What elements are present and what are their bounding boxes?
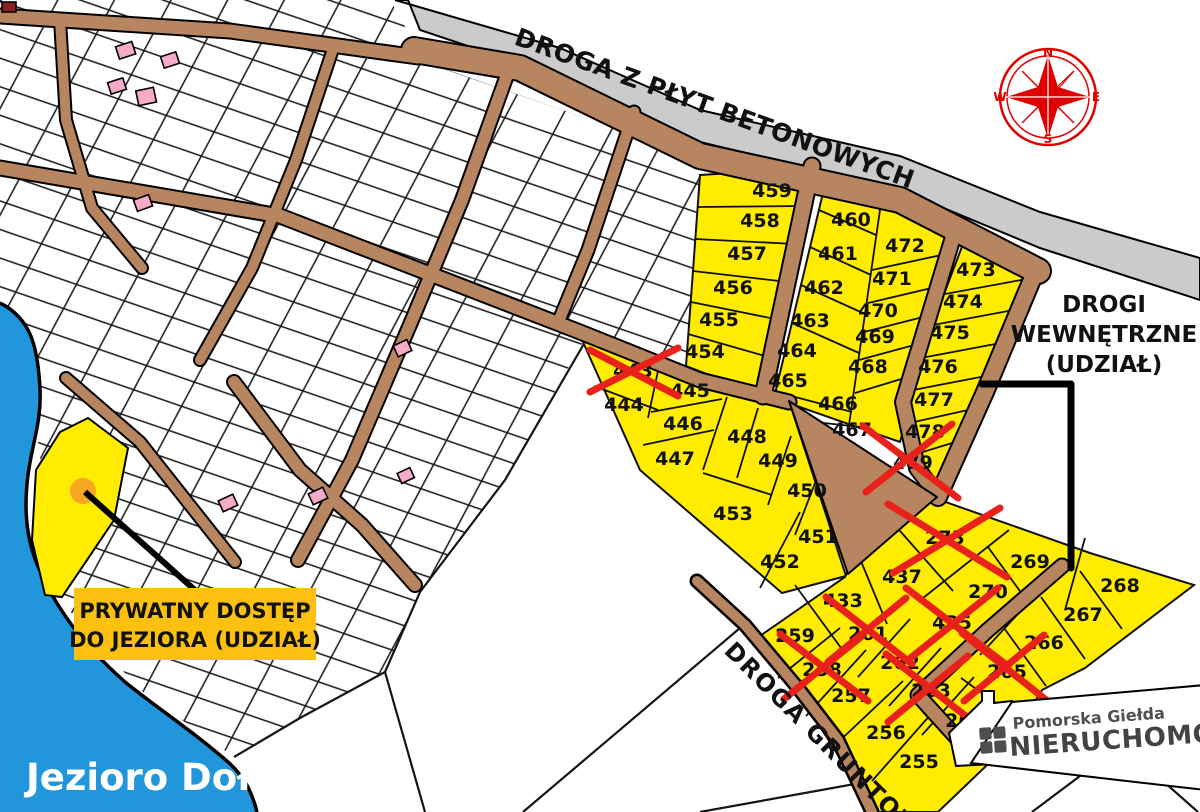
svg-text:(UDZIAŁ): (UDZIAŁ) — [1046, 352, 1163, 378]
parcel-number: 458 — [740, 210, 780, 232]
parcel-number: 465 — [768, 370, 808, 392]
parcel-number: 473 — [956, 259, 996, 281]
svg-text:WEWNĘTRZNE: WEWNĘTRZNE — [1011, 322, 1197, 348]
parcel-number: 453 — [713, 503, 753, 525]
parcel-number: 477 — [914, 389, 954, 411]
parcel-number: 444 — [604, 394, 644, 416]
internal-roads-label: DROGI WEWNĘTRZNE (UDZIAŁ) — [1011, 292, 1197, 378]
private-access-label: PRYWATNY DOSTĘP DO JEZIORA (UDZIAŁ) — [69, 588, 321, 660]
lake-name: Jezioro Dołgie — [23, 756, 315, 799]
parcel-number: 255 — [899, 751, 939, 773]
svg-text:DROGI: DROGI — [1062, 292, 1146, 318]
parcel-number: 472 — [885, 235, 925, 257]
parcel-number: 267 — [1063, 604, 1103, 626]
parcel-number: 451 — [798, 526, 838, 548]
parcel-map: 459 458 457 456 455 454 460 461 462 463 … — [0, 0, 1200, 812]
parcel-number: 476 — [918, 356, 958, 378]
svg-text:N: N — [1043, 46, 1053, 60]
svg-text:PRYWATNY DOSTĘP: PRYWATNY DOSTĘP — [79, 599, 310, 623]
parcel-number: 454 — [685, 341, 725, 363]
compass-rose-icon: N E S W — [993, 46, 1100, 146]
svg-text:S: S — [1044, 132, 1053, 146]
parcel-number: 452 — [760, 551, 800, 573]
svg-text:DO JEZIORA (UDZIAŁ): DO JEZIORA (UDZIAŁ) — [69, 628, 321, 652]
parcel-number: 463 — [790, 310, 830, 332]
parcel-number: 470 — [858, 300, 898, 322]
parcel-number: 464 — [777, 340, 817, 362]
parcel-number: 455 — [699, 309, 739, 331]
map-canvas: 459 458 457 456 455 454 460 461 462 463 … — [0, 0, 1200, 812]
parcel-number: 474 — [943, 291, 983, 313]
parcel-number: 457 — [727, 243, 767, 265]
parcel-number: 446 — [663, 413, 703, 435]
svg-text:E: E — [1092, 90, 1100, 104]
agency-logo: Pomorska Giełda NIERUCHOMOŚCI — [949, 685, 1200, 790]
parcel-number: 462 — [804, 277, 844, 299]
parcel-number: 256 — [866, 722, 906, 744]
parcel-number: 471 — [872, 268, 912, 290]
parcel-number: 447 — [655, 448, 695, 470]
parcel-number: 456 — [713, 277, 753, 299]
parcel-number: 448 — [727, 426, 767, 448]
parcel-number: 459 — [752, 180, 792, 202]
parcel-number: 468 — [848, 356, 888, 378]
parcel-number: 269 — [1010, 551, 1050, 573]
parcel-number: 268 — [1100, 575, 1140, 597]
parcel-number: 461 — [818, 243, 858, 265]
parcel-number: 466 — [818, 393, 858, 415]
parcel-number: 450 — [787, 480, 827, 502]
parcel-number: 475 — [930, 322, 970, 344]
parcel-number: 449 — [758, 450, 798, 472]
parcel-number: 460 — [831, 209, 871, 231]
svg-text:W: W — [993, 90, 1006, 104]
parcel-number: 469 — [855, 326, 895, 348]
